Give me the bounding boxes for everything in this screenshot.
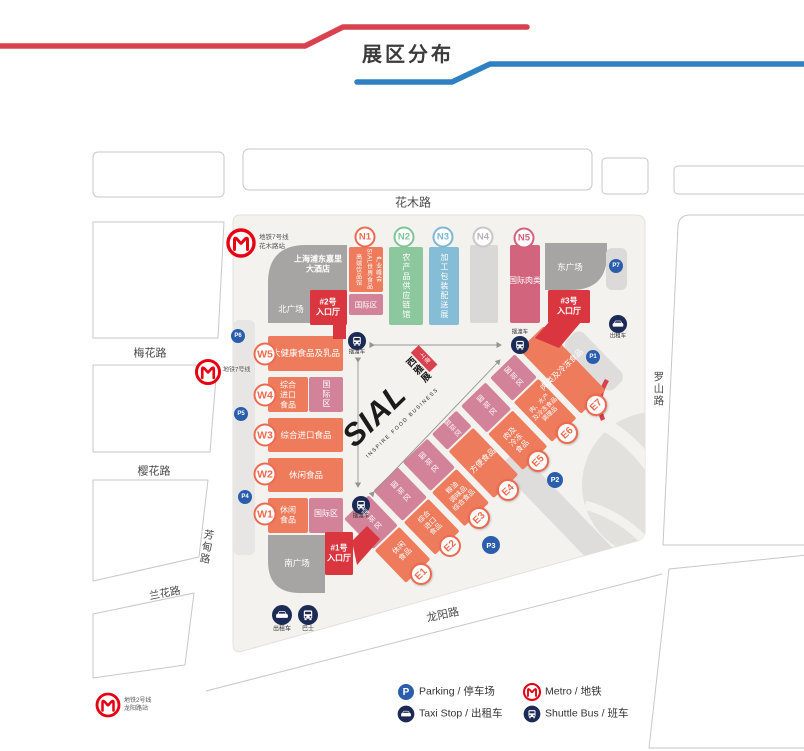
legend-shuttle-icon — [524, 706, 541, 723]
entrance-1-shape — [325, 532, 353, 575]
shuttle-bus-icon — [352, 496, 370, 514]
bus-icon — [298, 605, 318, 625]
n-halls — [349, 245, 540, 325]
map-graphics — [0, 0, 804, 751]
metro-logo-icon — [97, 694, 119, 716]
entrance-2-shape — [310, 290, 347, 325]
metro-logo-icon — [197, 361, 220, 384]
legend-metro-icon — [524, 684, 540, 700]
shuttle-bus-icon — [348, 332, 366, 350]
taxi-icon — [609, 315, 627, 333]
shuttle-bus-icon — [511, 336, 529, 354]
west-parking-strip — [233, 320, 255, 555]
header-decoration — [0, 27, 804, 82]
entrance-2-stem — [333, 323, 346, 339]
exhibition-map-page: 展区分布 花木路 梅花路 樱花路 兰花路 芳甸路 罗山路 龙阳路 地铁7号线 花… — [0, 0, 804, 751]
south-square-shape — [268, 535, 325, 593]
taxi-icon — [272, 605, 292, 625]
metro-logo-icon — [228, 230, 254, 256]
entrance-3-shape — [548, 290, 590, 323]
w-halls — [268, 336, 343, 533]
legend-taxi-icon — [398, 706, 415, 723]
p7-strip — [606, 248, 627, 290]
